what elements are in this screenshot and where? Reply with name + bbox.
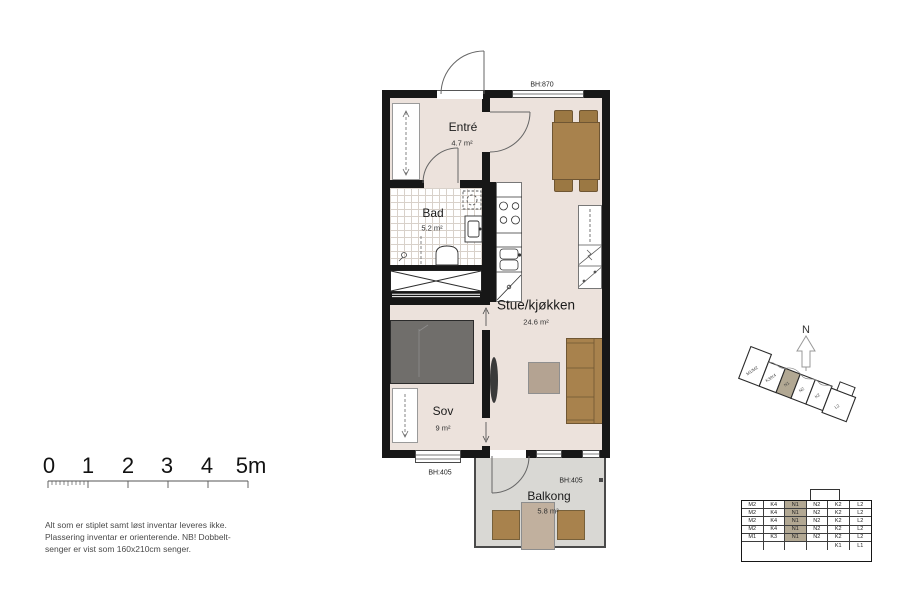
shaft-grille xyxy=(390,292,482,299)
locator-label-3: N2 xyxy=(798,386,806,394)
wall-kitchen-back xyxy=(490,182,496,302)
balcony-door-gap xyxy=(490,450,526,458)
stack-cell: K2 xyxy=(828,501,850,509)
wall-bottom-4 xyxy=(562,450,582,458)
sov-wardrobe xyxy=(392,388,418,443)
locator-label-5: L2 xyxy=(833,403,840,410)
stack-cell: K3 xyxy=(764,534,786,542)
stack-cell: M2 xyxy=(742,526,764,534)
floorplan-canvas: M1/M2 K3/K4 N1 N2 K2 L2 Entré 4.7 m² Bad… xyxy=(0,0,900,600)
wall-core-1 xyxy=(482,98,490,112)
wall-bad-bottom xyxy=(382,265,490,270)
disclaimer-line-3: senger er vist som 160x210cm senger. xyxy=(45,543,191,555)
disclaimer-line-2: Plassering inventar er orienterende. NB!… xyxy=(45,531,231,543)
wall-core-3 xyxy=(482,330,490,418)
stack-cell: N1 xyxy=(785,509,807,517)
coffee-table xyxy=(528,362,560,394)
stack-table-bottom-row xyxy=(741,550,872,562)
stack-cell: M2 xyxy=(742,501,764,509)
scale-label-5: 5m xyxy=(236,453,267,479)
stack-cell: N1 xyxy=(785,517,807,525)
stack-cell: N2 xyxy=(807,534,829,542)
disclaimer-line-1: Alt som er stiplet samt løst inventar le… xyxy=(45,519,227,531)
scale-label-2: 2 xyxy=(122,453,134,479)
window-height-label-top: BH:870 xyxy=(530,82,553,89)
room-area-entre: 4.7 m² xyxy=(451,139,472,148)
entrance-door-arc xyxy=(441,51,484,94)
locator-label-2: N1 xyxy=(783,380,791,388)
balcony-drain xyxy=(599,478,603,482)
balcony-chair-1 xyxy=(492,510,520,540)
room-label-balkong: Balkong xyxy=(527,489,570,503)
stack-cell: N2 xyxy=(807,526,829,534)
wall-bottom-1 xyxy=(382,450,415,458)
room-area-sov: 9 m² xyxy=(436,424,451,433)
stack-cell: N1 xyxy=(785,501,807,509)
stack-cell: N2 xyxy=(807,509,829,517)
wall-right xyxy=(602,90,610,458)
window-height-label-sov: BH:405 xyxy=(428,470,451,477)
locator-label-4: K2 xyxy=(814,392,822,399)
scale-label-1: 1 xyxy=(82,453,94,479)
stack-cell: K4 xyxy=(764,509,786,517)
stack-cell: N2 xyxy=(807,517,829,525)
wardrobe-cabinet xyxy=(578,205,602,289)
locator-label-1: K3/K4 xyxy=(764,372,777,383)
stack-cell: L2 xyxy=(850,501,872,509)
north-arrow-icon xyxy=(797,336,815,371)
window-height-label-balkong: BH:405 xyxy=(559,478,582,485)
locator-cell-1 xyxy=(759,362,785,393)
wall-entre-bad-1 xyxy=(390,180,424,188)
stack-table-grid: M2 K4 N1 N2 K2 L2 M2 K4 N1 N2 K2 L2 M2 K… xyxy=(741,500,872,551)
entrance-door-gap xyxy=(437,90,483,99)
window-stue-2 xyxy=(582,450,600,458)
room-area-balkong: 5.8 m² xyxy=(537,507,558,516)
stack-cell: M1 xyxy=(742,534,764,542)
wall-top-2 xyxy=(483,90,512,98)
stack-cell: N2 xyxy=(807,501,829,509)
locator-cell-0 xyxy=(739,347,772,387)
window-sov xyxy=(415,450,461,463)
unit-stack-table: M2 K4 N1 N2 K2 L2 M2 K4 N1 N2 K2 L2 M2 K… xyxy=(741,489,872,562)
stack-cell: L2 xyxy=(850,517,872,525)
room-area-bad: 5.2 m² xyxy=(421,224,442,233)
building-locator: M1/M2 K3/K4 N1 N2 K2 L2 xyxy=(738,347,859,422)
stack-cell: K2 xyxy=(828,509,850,517)
locator-label-0: M1/M2 xyxy=(745,365,759,377)
sofa xyxy=(566,338,603,424)
north-label: N xyxy=(802,324,810,336)
locator-cell-2 xyxy=(776,368,800,398)
stack-cell: K4 xyxy=(764,501,786,509)
wall-top-1 xyxy=(382,90,437,98)
stack-cell: K2 xyxy=(828,517,850,525)
wall-sov-top xyxy=(382,299,490,305)
room-label-stue: Stue/kjøkken xyxy=(497,298,575,313)
window-top xyxy=(512,90,584,98)
wall-bottom-5 xyxy=(600,450,610,458)
stack-cell: N1 xyxy=(785,534,807,542)
stack-cell: K2 xyxy=(828,534,850,542)
stack-cell: M2 xyxy=(742,509,764,517)
scale-label-0: 0 xyxy=(43,453,55,479)
locator-cell-4 xyxy=(806,380,832,411)
stack-cell: K2 xyxy=(828,526,850,534)
stack-cell: M2 xyxy=(742,517,764,525)
stack-cell: L2 xyxy=(850,509,872,517)
dining-table xyxy=(552,122,600,180)
kitchen-counter xyxy=(496,182,522,302)
room-area-stue: 24.6 m² xyxy=(523,318,548,327)
window-stue-1 xyxy=(536,450,562,458)
scale-label-3: 3 xyxy=(161,453,173,479)
scale-label-4: 4 xyxy=(201,453,213,479)
wall-left xyxy=(382,90,390,458)
stack-cell: L2 xyxy=(850,534,872,542)
wall-bottom-3 xyxy=(526,450,536,458)
wall-core-2 xyxy=(482,152,490,305)
locator-cell-5 xyxy=(822,388,856,422)
stack-cell: N1 xyxy=(785,526,807,534)
locator-cell-3 xyxy=(791,374,815,404)
wall-core-4 xyxy=(482,446,490,458)
stack-cell: K4 xyxy=(764,526,786,534)
scalebar-ticks xyxy=(48,481,248,488)
entre-wardrobe xyxy=(392,103,420,180)
room-label-sov: Sov xyxy=(433,404,454,418)
locator-terrain-line xyxy=(768,360,833,389)
wall-top-3 xyxy=(584,90,610,98)
room-label-entre: Entré xyxy=(449,120,478,134)
balcony-chair-2 xyxy=(557,510,585,540)
room-label-bad: Bad xyxy=(422,206,443,220)
double-bed xyxy=(390,320,474,384)
wall-entre-bad-2 xyxy=(460,180,482,188)
stack-cell: L2 xyxy=(850,526,872,534)
locator-stair-box xyxy=(837,382,855,396)
stack-cell: K4 xyxy=(764,517,786,525)
shaft xyxy=(390,270,482,292)
